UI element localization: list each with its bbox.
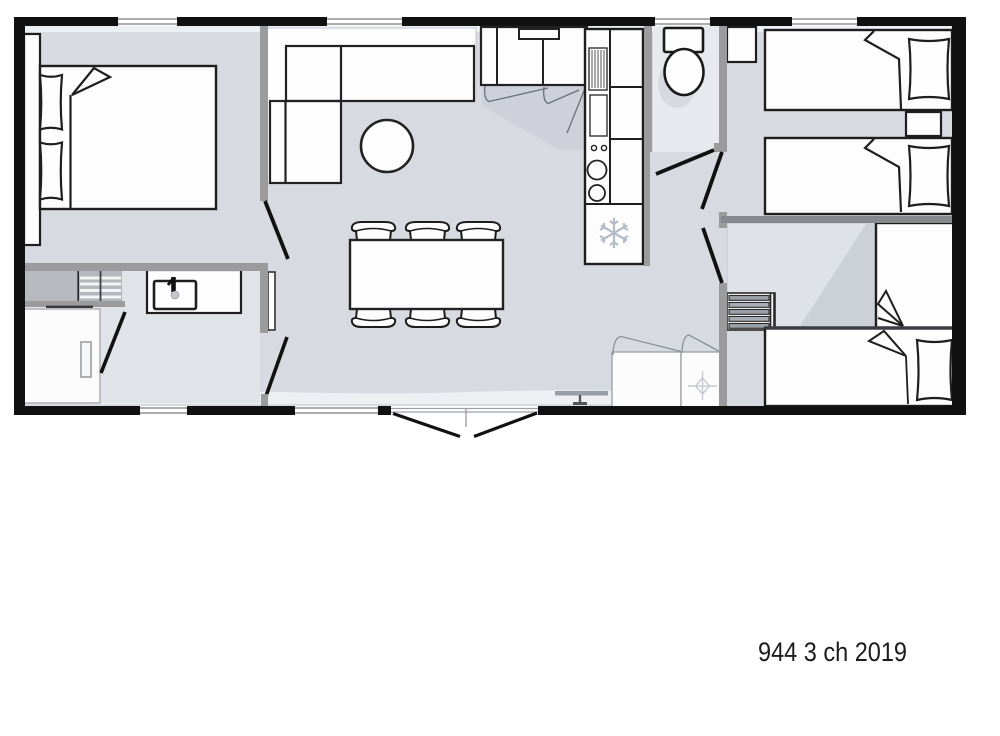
svg-text:944 3 ch 2019: 944 3 ch 2019	[758, 637, 907, 667]
